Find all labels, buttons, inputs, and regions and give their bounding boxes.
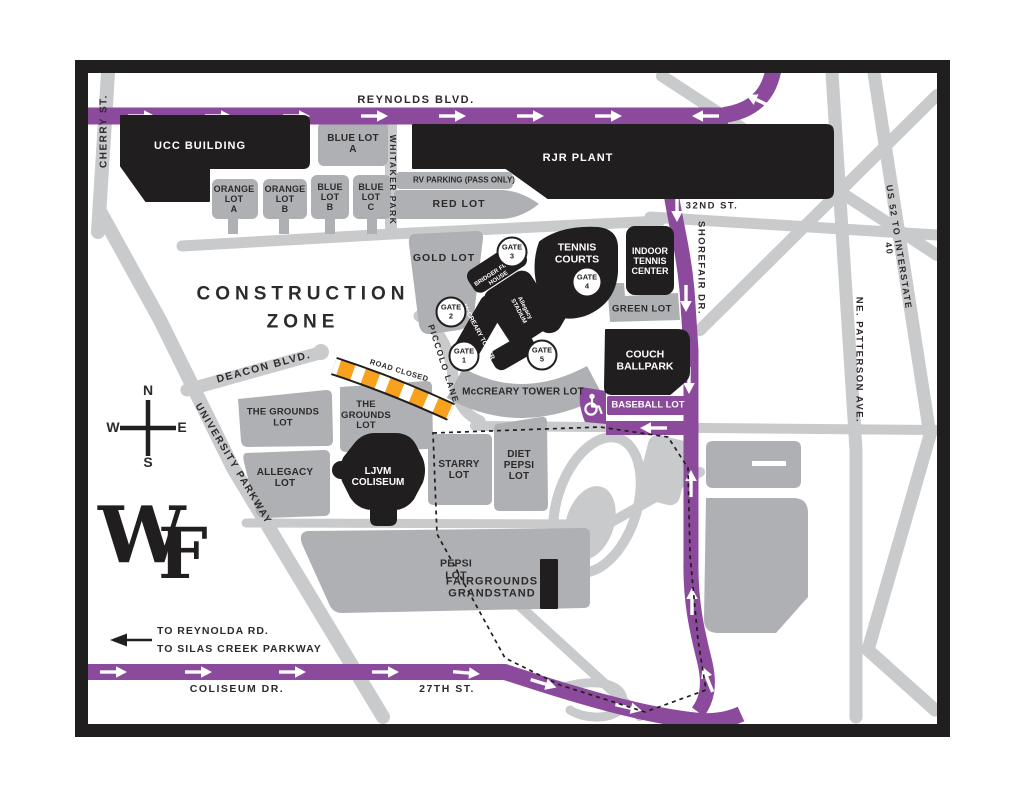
compass-n: N — [143, 383, 153, 399]
compass-s: S — [143, 455, 152, 471]
wf-logo-f: F — [158, 519, 208, 589]
label-indoor-tennis: INDOOR TENNIS CENTER — [631, 246, 668, 276]
label-starry-lot: STARRY LOT — [438, 459, 479, 481]
label-32nd-st: 32ND ST. — [686, 202, 739, 213]
compass-w: W — [106, 420, 119, 436]
label-27th-st: 27TH ST. — [419, 684, 475, 696]
label-baseball-lot: BASEBALL LOT — [611, 401, 684, 412]
road-lot-row — [246, 523, 598, 524]
label-patterson-ave: NE. PATTERSON AVE. — [853, 297, 864, 423]
gate-3-marker: GATE 3 — [497, 237, 528, 268]
gate-4-marker: GATE 4 — [572, 267, 603, 298]
label-coliseum-dr: COLISEUM DR. — [190, 684, 284, 696]
label-to-silas-creek: TO SILAS CREEK PARKWAY — [157, 644, 322, 656]
label-rjr-plant: RJR PLANT — [543, 152, 614, 164]
to-reynolda-arrow — [110, 634, 152, 647]
building-ljvm-annex — [333, 462, 349, 478]
compass-rose — [120, 400, 176, 456]
label-whitaker-park: WHITAKER PARK — [387, 135, 397, 225]
gray-block-east-2 — [704, 498, 808, 633]
label-construction-zone: CONSTRUCTION ZONE — [196, 280, 409, 335]
lot-blue-c-stem — [367, 219, 377, 234]
label-cherry-st: CHERRY ST. — [98, 94, 109, 168]
label-blue-lot-c: BLUE LOT C — [358, 182, 383, 212]
lot-orange-a-stem — [228, 219, 238, 234]
label-diet-pepsi-lot: DIET PEPSI LOT — [504, 449, 534, 483]
gate-2-marker: GATE 2 — [436, 297, 467, 328]
road-us52 — [868, 73, 935, 710]
label-pepsi-lot: PEPSI LOT — [440, 558, 472, 582]
label-mccreary-tower-lot: McCREARY TOWER LOT — [462, 386, 584, 397]
label-grounds-lot-right: THE GROUNDS LOT — [341, 400, 391, 432]
label-tennis-courts: TENNIS COURTS — [555, 242, 599, 266]
label-allegacy-lot: ALLEGACY LOT — [257, 467, 314, 489]
label-orange-lot-b: ORANGE LOT B — [265, 184, 306, 214]
label-gold-lot: GOLD LOT — [413, 253, 475, 265]
gate-5-marker: GATE 5 — [527, 340, 558, 371]
label-grounds-lot-left: THE GROUNDS LOT — [247, 407, 319, 428]
label-blue-lot-b: BLUE LOT B — [317, 182, 342, 212]
label-rv-parking: RV PARKING (PASS ONLY) — [413, 177, 515, 186]
building-grandstand — [541, 560, 557, 608]
lot-orange-b-stem — [279, 219, 289, 234]
campus-parking-map: CHERRY ST. REYNOLDS BLVD. WHITAKER PARK … — [0, 0, 1024, 791]
label-shorefair-dr: SHOREFAIR DR. — [695, 221, 706, 315]
route-entry-curve — [724, 66, 774, 115]
gray-block-notch — [752, 461, 786, 466]
label-couch-ballpark: COUCH BALLPARK — [617, 349, 674, 373]
label-ucc-building: UCC BUILDING — [154, 140, 246, 152]
label-reynolds-blvd: REYNOLDS BLVD. — [357, 94, 474, 106]
route-coliseum-27th — [88, 672, 741, 721]
label-to-reynolda: TO REYNOLDA RD. — [157, 626, 269, 638]
deacon-blvd-stub — [313, 344, 329, 360]
gate-1-marker: GATE 1 — [449, 341, 480, 372]
label-green-lot: GREEN LOT — [612, 305, 672, 316]
compass-e: E — [177, 420, 186, 436]
lot-blue-b-stem — [325, 219, 335, 234]
label-red-lot: RED LOT — [432, 199, 485, 211]
label-ljvm-coliseum: LJVM COLISEUM — [352, 466, 405, 488]
label-orange-lot-a: ORANGE LOT A — [214, 184, 255, 214]
label-blue-lot-a: BLUE LOT A — [327, 133, 379, 155]
